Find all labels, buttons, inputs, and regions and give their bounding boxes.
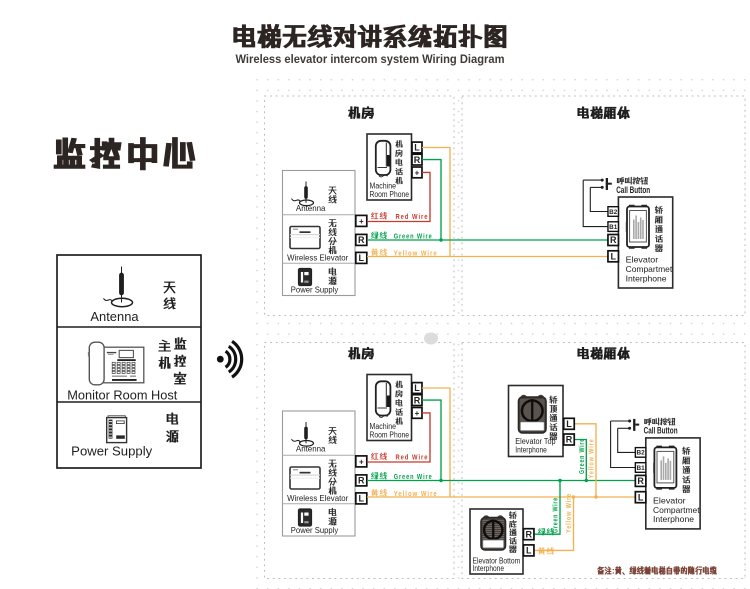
- svg-text:R: R: [525, 529, 532, 539]
- svg-text:Power Supply: Power Supply: [291, 285, 339, 295]
- svg-text:Yellow Wire: Yellow Wire: [587, 439, 596, 479]
- svg-text:R: R: [610, 235, 617, 245]
- svg-text::: :: [612, 565, 615, 575]
- svg-text:+: +: [415, 409, 420, 418]
- svg-text:Interphone: Interphone: [626, 273, 667, 283]
- svg-text:B2: B2: [637, 450, 646, 457]
- svg-text:R: R: [358, 476, 365, 486]
- svg-text:L: L: [610, 252, 616, 262]
- svg-text:Antenna: Antenna: [90, 310, 138, 324]
- svg-text:B2: B2: [609, 209, 618, 216]
- svg-text:Antenna: Antenna: [296, 444, 326, 454]
- svg-text:L: L: [566, 419, 572, 429]
- svg-text:Green Wire: Green Wire: [394, 472, 433, 481]
- svg-text:+: +: [359, 457, 364, 466]
- svg-text:L: L: [414, 383, 420, 393]
- svg-text:Green Wire: Green Wire: [551, 497, 560, 533]
- svg-text:L: L: [638, 492, 644, 502]
- svg-text:R: R: [637, 476, 644, 486]
- svg-text:Wireless Elevator: Wireless Elevator: [287, 252, 348, 262]
- svg-text:Interphone: Interphone: [473, 564, 505, 573]
- svg-text:Green Wire: Green Wire: [577, 438, 586, 474]
- svg-text:Red Wire: Red Wire: [396, 212, 429, 221]
- svg-text:Wireless elevator intercom sys: Wireless elevator intercom system Wiring…: [236, 53, 505, 66]
- svg-text:Interphone: Interphone: [515, 446, 547, 455]
- svg-text:Room Phone: Room Phone: [370, 190, 410, 199]
- svg-text:Interphone: Interphone: [653, 514, 694, 524]
- svg-text:Yellow Wire: Yellow Wire: [564, 493, 573, 533]
- svg-text:Room Phone: Room Phone: [370, 431, 410, 440]
- svg-text:Green Wire: Green Wire: [394, 232, 433, 241]
- svg-text:R: R: [358, 235, 365, 245]
- svg-text:L: L: [359, 494, 365, 504]
- svg-text:Antenna: Antenna: [296, 203, 326, 213]
- svg-text:+: +: [359, 217, 364, 226]
- svg-text:Monitor Room Host: Monitor Room Host: [67, 389, 178, 403]
- svg-text:Red Wire: Red Wire: [396, 453, 429, 462]
- svg-text:B1: B1: [637, 465, 646, 472]
- svg-text:L: L: [414, 143, 420, 153]
- svg-text:Call Button: Call Button: [616, 185, 650, 195]
- svg-text:R: R: [566, 435, 573, 445]
- svg-text:+: +: [415, 168, 420, 177]
- svg-text:L: L: [359, 253, 365, 263]
- svg-text:L: L: [526, 546, 532, 556]
- svg-text:R: R: [414, 155, 421, 165]
- svg-text:Call Button: Call Button: [644, 426, 678, 436]
- svg-text:Power Supply: Power Supply: [71, 445, 153, 459]
- svg-text:B1: B1: [609, 224, 618, 231]
- svg-text:Power Supply: Power Supply: [291, 525, 339, 535]
- svg-text:R: R: [414, 395, 421, 405]
- svg-text:Wireless Elevator: Wireless Elevator: [287, 493, 348, 503]
